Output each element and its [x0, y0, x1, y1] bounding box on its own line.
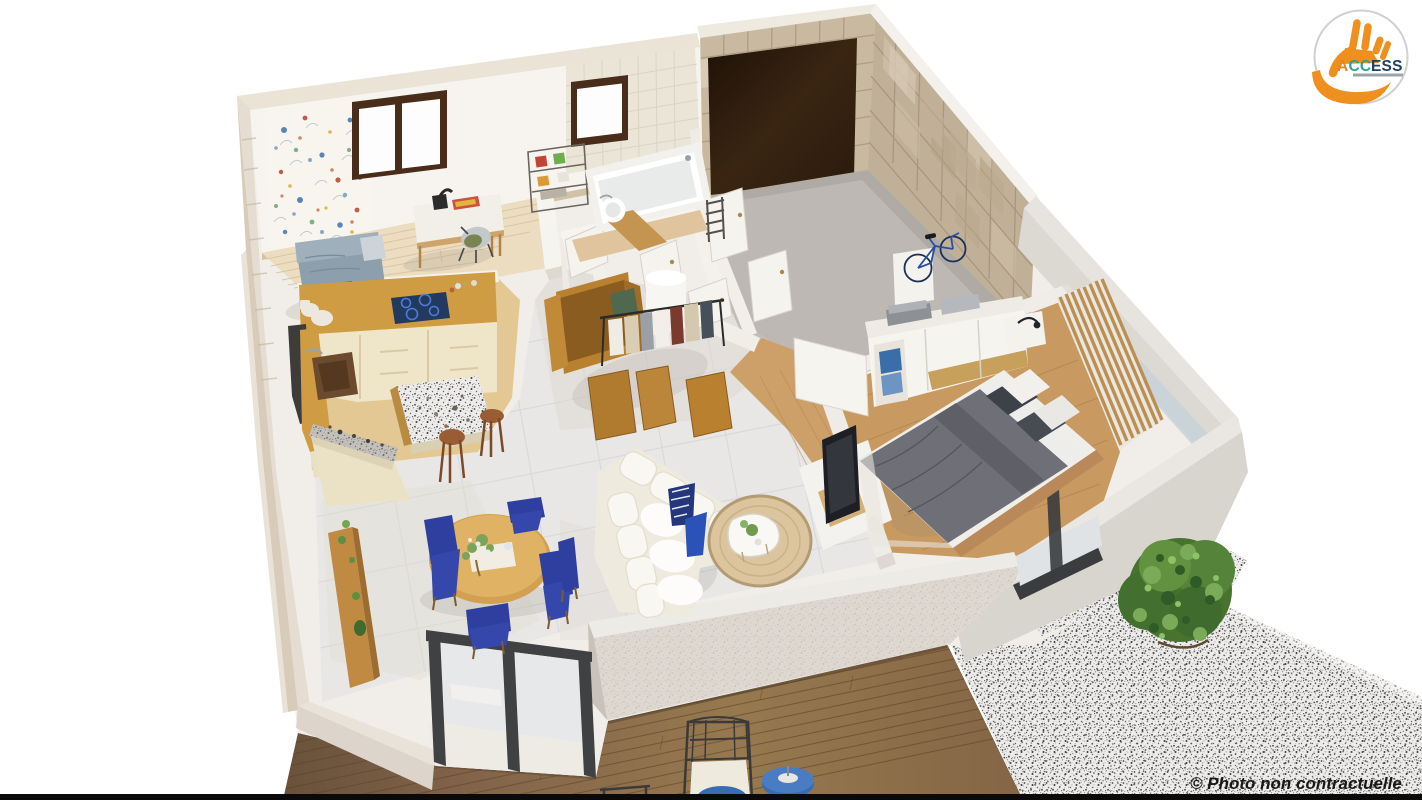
svg-text:A: A: [1337, 58, 1348, 75]
svg-text:CC: CC: [1349, 58, 1372, 75]
svg-text:ESS: ESS: [1371, 58, 1403, 75]
svg-text:© Photo non contractuelle: © Photo non contractuelle: [1190, 774, 1402, 793]
